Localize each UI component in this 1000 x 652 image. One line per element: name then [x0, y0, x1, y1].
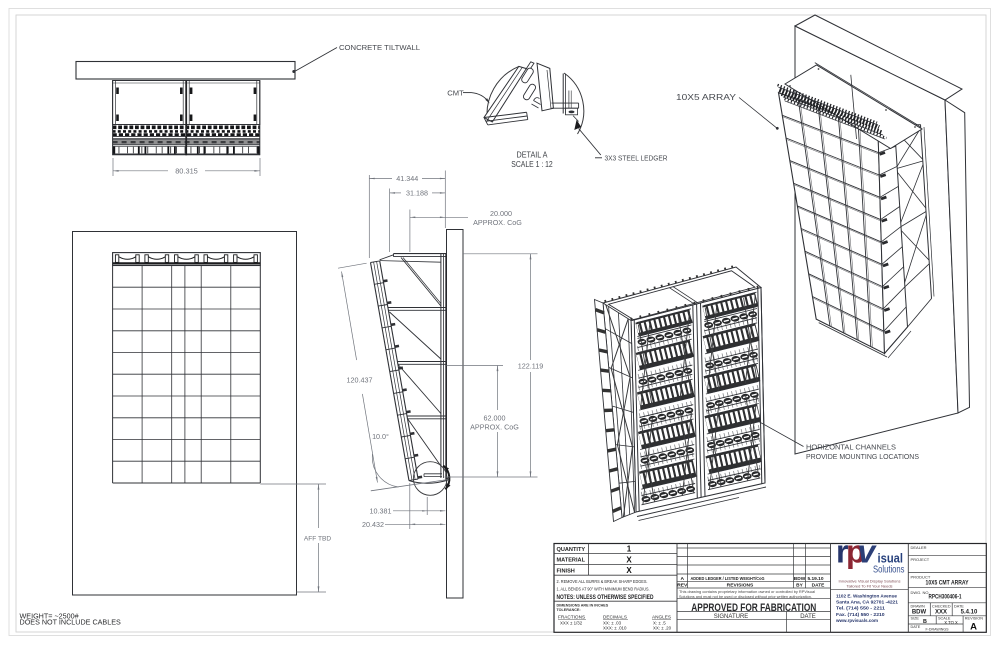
svg-text:B: B	[923, 619, 927, 625]
svg-text:F-DRAWINGS: F-DRAWINGS	[925, 627, 949, 631]
svg-text:AFF TBD: AFF TBD	[304, 536, 332, 543]
svg-text:Tailored To Fit Your Needs: Tailored To Fit Your Needs	[847, 584, 893, 588]
svg-text:20.432: 20.432	[362, 520, 384, 529]
svg-text:REVISIONS: REVISIONS	[727, 583, 754, 589]
svg-text:DATE: DATE	[800, 614, 816, 620]
svg-text:BDW: BDW	[912, 610, 927, 616]
svg-text:PROVIDE MOUNTING LOCATIONS: PROVIDE MOUNTING LOCATIONS	[806, 452, 919, 461]
svg-text:FRACTIONS: FRACTIONS	[558, 614, 585, 619]
svg-text:CHECKED: CHECKED	[932, 604, 951, 608]
svg-text:CMT: CMT	[447, 89, 464, 98]
svg-text:XXX: XXX	[935, 610, 947, 616]
svg-text:BY: BY	[796, 583, 803, 589]
svg-text:1. ALL BENDS AT 90° WITH MINIM: 1. ALL BENDS AT 90° WITH MINIMUM BEND RA…	[557, 587, 650, 592]
svg-text:1102 E. Washington Avenue: 1102 E. Washington Avenue	[836, 594, 897, 600]
svg-text:NOTES: UNLESS OTHERWISE SPECIF: NOTES: UNLESS OTHERWISE SPECIFIED	[557, 594, 654, 601]
svg-text:X: X	[626, 566, 632, 575]
svg-text:A: A	[970, 622, 977, 633]
svg-text:5.19.10: 5.19.10	[807, 576, 823, 582]
svg-text:20.000: 20.000	[490, 209, 512, 218]
svg-text:RPCH300406-1: RPCH300406-1	[929, 593, 962, 600]
svg-text:X: X	[626, 555, 632, 564]
svg-text:DECIMALS: DECIMALS	[603, 614, 627, 619]
svg-text:10.381: 10.381	[370, 506, 392, 515]
svg-text:5.4.10: 5.4.10	[961, 610, 978, 616]
svg-text:XX: ± .20: XX: ± .20	[653, 626, 672, 631]
svg-text:XXX: ± .010: XXX: ± .010	[603, 626, 627, 631]
svg-text:31.188: 31.188	[406, 189, 428, 198]
svg-text:DATE: DATE	[812, 583, 826, 589]
svg-text:Innovative Visual Display Solu: Innovative Visual Display Solutions	[839, 580, 901, 584]
svg-text:DIMENSIONS ARE IN INCHES: DIMENSIONS ARE IN INCHES	[557, 604, 609, 608]
svg-text:10X5 CMT ARRAY: 10X5 CMT ARRAY	[926, 580, 970, 587]
svg-text:BDW: BDW	[794, 576, 806, 582]
svg-text:HORIZONTAL CHANNELS: HORIZONTAL CHANNELS	[806, 443, 896, 452]
svg-text:FINISH: FINISH	[557, 568, 575, 574]
svg-text:XXX ± 1/32: XXX ± 1/32	[560, 620, 583, 625]
svg-text:QUANTITY: QUANTITY	[557, 547, 586, 553]
svg-text:Solutions and must not be used: Solutions and must not be used or disclo…	[679, 595, 812, 599]
svg-text:REVISION: REVISION	[965, 617, 983, 621]
svg-text:41.344: 41.344	[396, 174, 418, 183]
svg-text:SIZE: SIZE	[911, 617, 920, 621]
svg-text:122.119: 122.119	[518, 362, 543, 371]
svg-text:DRAWN: DRAWN	[911, 604, 925, 608]
svg-text:isual: isual	[878, 551, 904, 565]
svg-text:SCALE 1 : 12: SCALE 1 : 12	[511, 160, 553, 169]
svg-text:Solutions: Solutions	[873, 565, 905, 576]
svg-text:A: A	[681, 576, 685, 582]
svg-text:CONCRETE TILTWALL: CONCRETE TILTWALL	[339, 43, 420, 52]
svg-text:X TO X: X TO X	[944, 620, 958, 625]
svg-text:120.437: 120.437	[347, 376, 373, 385]
svg-text:Santa Ana, CA 92701 -4221: Santa Ana, CA 92701 -4221	[836, 600, 898, 606]
svg-text:62.000: 62.000	[484, 414, 506, 423]
svg-text:DOES NOT INCLUDE CABLES: DOES NOT INCLUDE CABLES	[20, 618, 122, 627]
svg-text:DEALER: DEALER	[911, 545, 927, 550]
svg-text:REV: REV	[677, 583, 688, 589]
svg-text:2. REMOVE ALL BURRS & BREAK SH: 2. REMOVE ALL BURRS & BREAK SHARP EDGES.	[557, 579, 648, 584]
svg-text:DATE: DATE	[911, 625, 921, 629]
svg-text:SIGNATURE: SIGNATURE	[714, 614, 749, 620]
svg-text:10X5 ARRAY: 10X5 ARRAY	[676, 93, 737, 102]
svg-text:DWG. NO.: DWG. NO.	[911, 590, 930, 595]
svg-text:3X3 STEEL LEDGER: 3X3 STEEL LEDGER	[605, 153, 668, 162]
svg-text:MATERIAL: MATERIAL	[557, 558, 586, 564]
svg-text:APPROX. CoG: APPROX. CoG	[473, 218, 522, 227]
svg-text:1: 1	[627, 545, 632, 554]
svg-text:APPROVED FOR FABRICATION: APPROVED FOR FABRICATION	[691, 602, 816, 614]
svg-text:APPROX. CoG: APPROX. CoG	[470, 423, 519, 432]
svg-text:PROJECT: PROJECT	[911, 557, 930, 562]
svg-text:DETAIL A: DETAIL A	[517, 151, 549, 160]
svg-text:DATE: DATE	[954, 604, 964, 608]
svg-text:TOLERANCE:: TOLERANCE:	[557, 608, 581, 612]
svg-text:10.0°: 10.0°	[372, 432, 389, 441]
svg-text:This drawing contains propriet: This drawing contains proprietary inform…	[679, 590, 815, 594]
svg-text:80.315: 80.315	[175, 166, 198, 175]
svg-text:ANGLES: ANGLES	[652, 614, 671, 619]
svg-text:ADDED LEDGER / LISTED WEIGHT/C: ADDED LEDGER / LISTED WEIGHT/CoG	[691, 576, 765, 582]
svg-text:Tel. (714) 550 - 2211: Tel. (714) 550 - 2211	[836, 606, 885, 612]
svg-text:www.rpvisuals.com: www.rpvisuals.com	[835, 618, 879, 624]
svg-text:Fax. (714) 550 - 2210: Fax. (714) 550 - 2210	[836, 612, 885, 618]
